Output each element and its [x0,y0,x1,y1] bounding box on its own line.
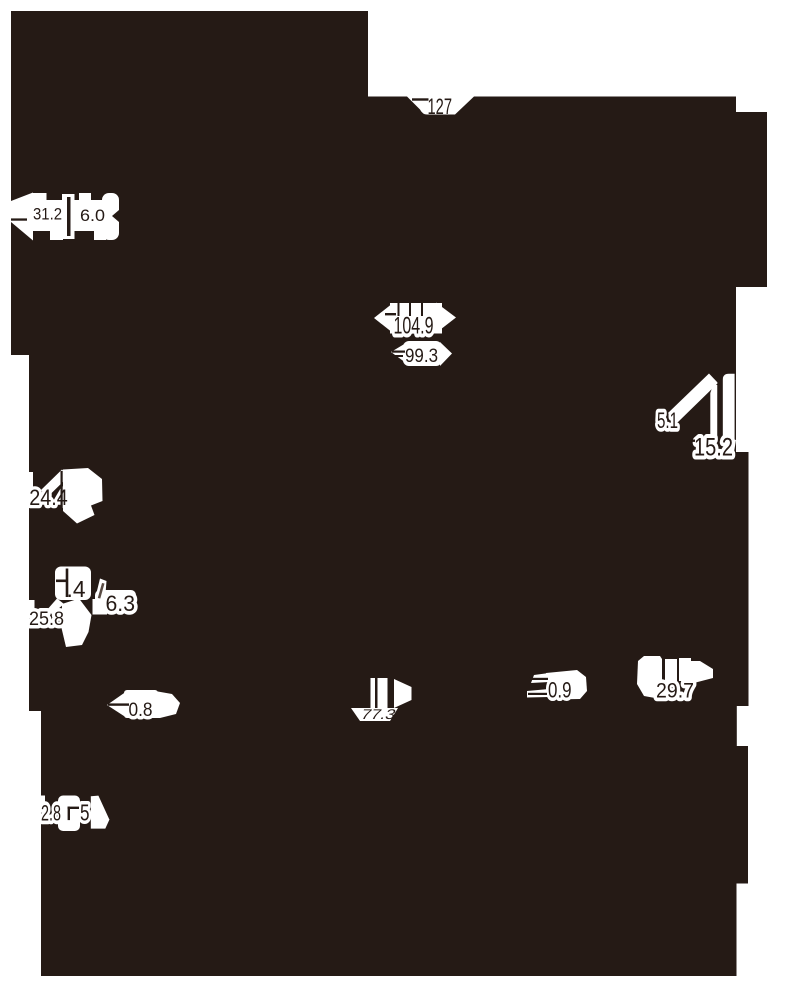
svg-text:0.9: 0.9 [548,678,572,703]
svg-text:104.9: 104.9 [394,313,434,340]
svg-text:.4: .4 [67,576,86,602]
svg-text:2.8: 2.8 [41,801,61,826]
svg-text:24.4: 24.4 [29,485,68,510]
svg-text:29.7: 29.7 [656,679,694,703]
svg-text:6.3: 6.3 [106,591,136,616]
svg-text:0.8: 0.8 [129,700,153,721]
svg-text:25.8: 25.8 [29,609,64,630]
svg-text:77.3: 77.3 [359,707,398,723]
svg-text:5: 5 [80,800,90,826]
svg-text:15.2: 15.2 [694,434,733,462]
svg-text:6.0: 6.0 [80,206,105,225]
svg-text:31.2: 31.2 [33,205,62,224]
svg-text:99.3: 99.3 [405,346,438,367]
svg-text:127: 127 [428,94,453,119]
svg-text:5.1: 5.1 [657,408,678,433]
